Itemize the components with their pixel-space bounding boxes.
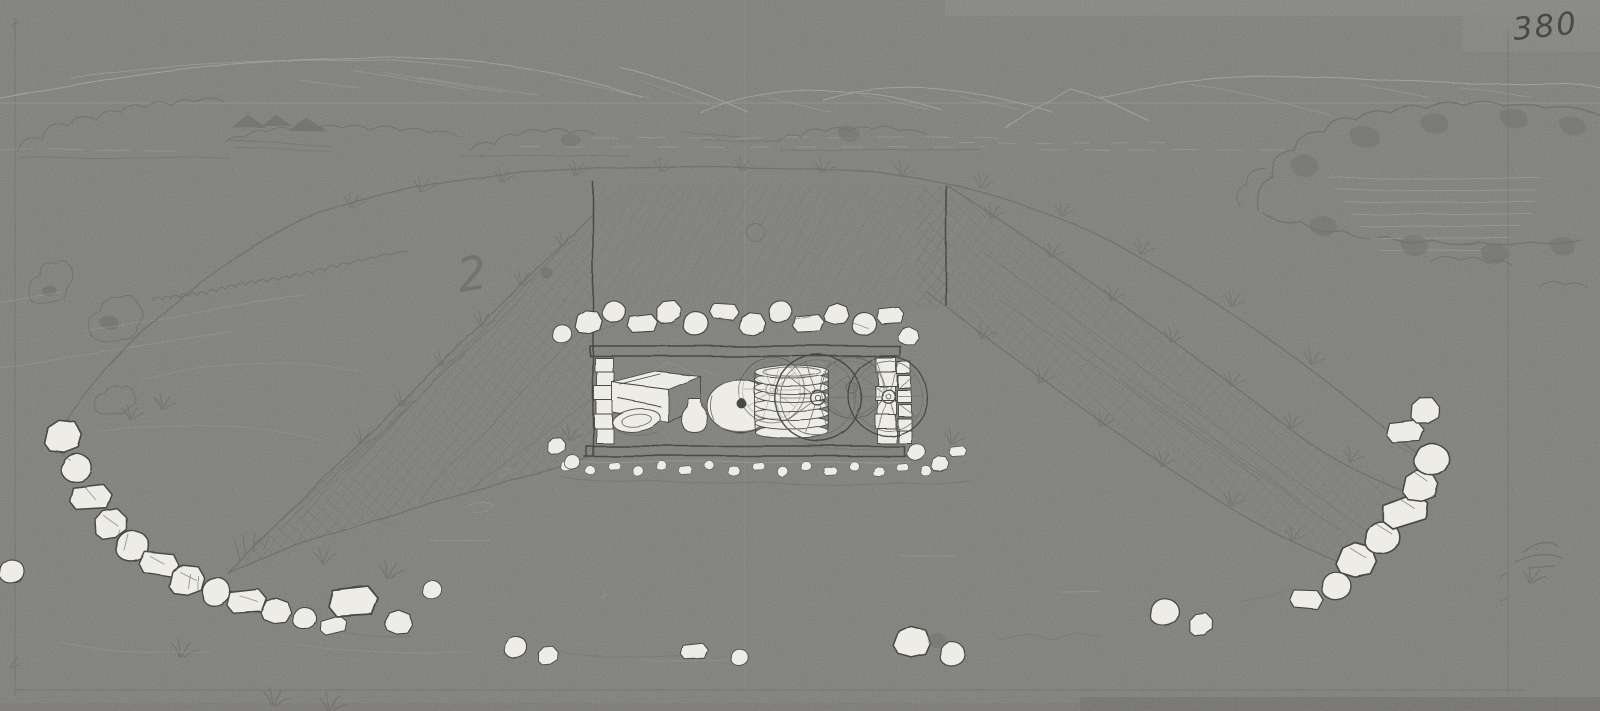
chamber-left-post (594, 358, 614, 443)
stone-on-face (541, 267, 553, 279)
stacked-rings-vessel (755, 366, 829, 439)
pencil-drawing: 380 2 (0, 0, 1600, 711)
sketch-sheet: 380 2 (0, 0, 1600, 711)
sheet-number-text: 380 (1511, 5, 1580, 48)
